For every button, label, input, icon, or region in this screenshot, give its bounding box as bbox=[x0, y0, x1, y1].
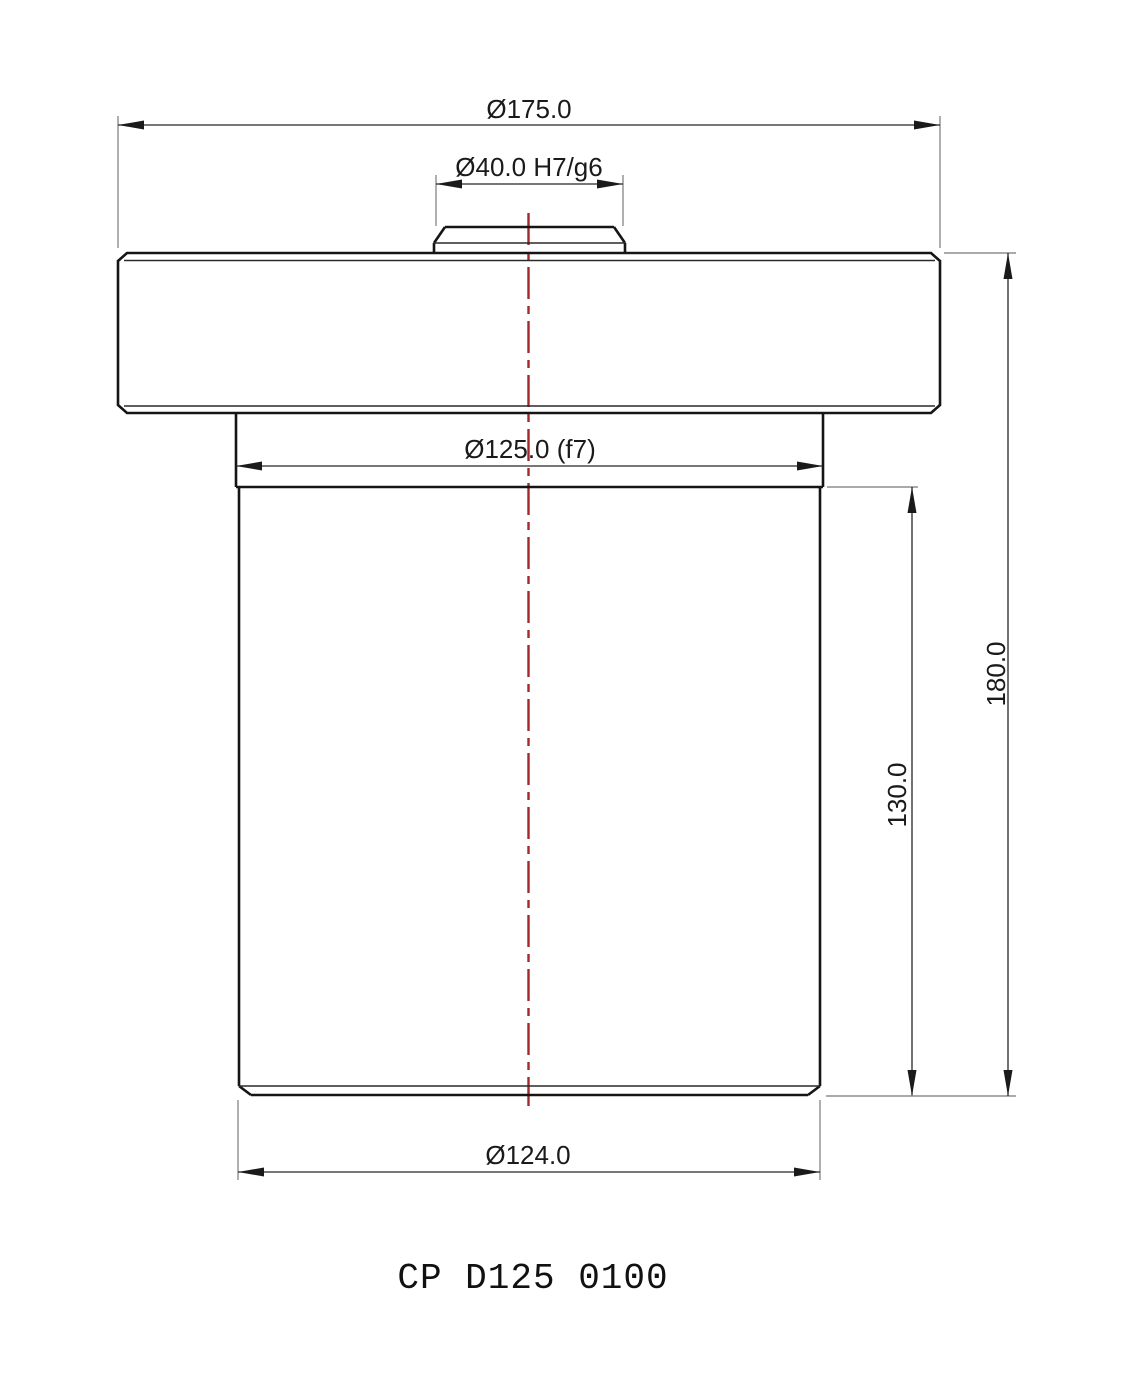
drawing-sheet: Ø175.0 Ø40.0 H7/g6 Ø125.0 (f7) Ø124.0 13… bbox=[0, 0, 1144, 1382]
part-title: CP D125 0100 bbox=[397, 1258, 668, 1299]
dimension-label: Ø175.0 bbox=[486, 94, 571, 124]
dimension-label: Ø125.0 (f7) bbox=[464, 434, 596, 464]
dimension-label: Ø40.0 H7/g6 bbox=[455, 152, 602, 182]
cad-drawing-canvas: Ø175.0 Ø40.0 H7/g6 Ø125.0 (f7) Ø124.0 13… bbox=[0, 0, 1144, 1382]
dimension-label: Ø124.0 bbox=[485, 1140, 570, 1170]
sheet-background bbox=[0, 0, 1144, 1382]
dimension-label: 180.0 bbox=[981, 641, 1011, 706]
dimension-label: 130.0 bbox=[882, 762, 912, 827]
